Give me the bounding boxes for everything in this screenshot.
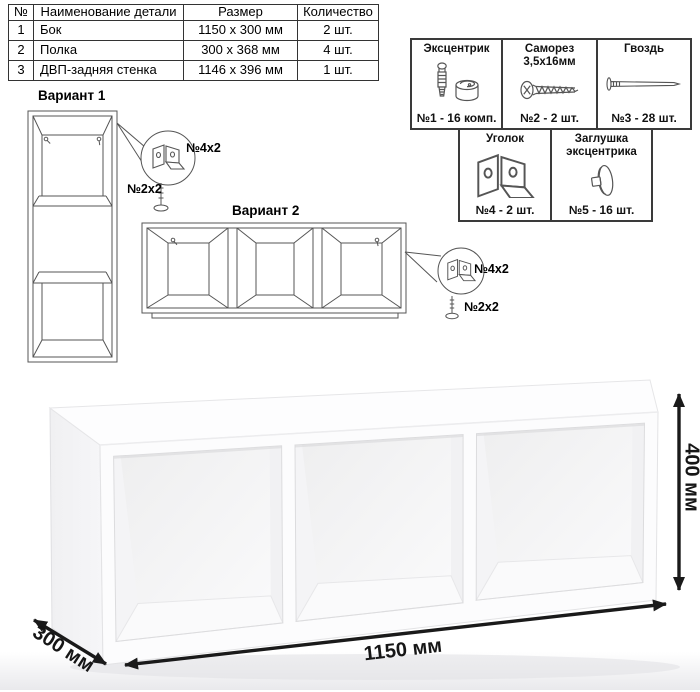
part-num: 2 (9, 41, 34, 61)
col-header-name: Наименование детали (34, 5, 184, 21)
variant1-cabinet-drawing (28, 111, 117, 362)
shelf-3d-render (0, 370, 700, 690)
variants-line-drawing (0, 85, 700, 375)
col-header-qty: Количество (298, 5, 379, 21)
variant2-cabinet-drawing (142, 223, 406, 318)
variant1-bracket-label: №4x2 (186, 141, 221, 155)
table-row: 1 Бок 1150 x 300 мм 2 шт. (9, 21, 379, 41)
part-size: 300 x 368 мм (184, 41, 298, 61)
table-row: 2 Полка 300 x 368 мм 4 шт. (9, 41, 379, 61)
variant2-bracket-label: №4x2 (474, 262, 509, 276)
assembly-instruction-sheet: { "parts_table": { "headers": ["№", "Наи… (0, 0, 700, 690)
variant1-screw-label: №2x2 (127, 182, 162, 196)
col-header-num: № (9, 5, 34, 21)
hardware-title: Саморез (525, 43, 574, 56)
part-qty: 1 шт. (298, 61, 379, 81)
part-name: Бок (34, 21, 184, 41)
shelf-opening (295, 435, 463, 622)
part-qty: 4 шт. (298, 41, 379, 61)
hardware-subtitle: 3,5х16мм (523, 56, 575, 69)
shelf-opening (114, 446, 283, 642)
parts-table-header: № Наименование детали Размер Количество (9, 5, 379, 21)
part-size: 1146 x 396 мм (184, 61, 298, 81)
height-dimension-label: 400 мм (680, 428, 700, 528)
part-num: 1 (9, 21, 34, 41)
part-qty: 2 шт. (298, 21, 379, 41)
variant1-callout (117, 123, 195, 211)
part-num: 3 (9, 61, 34, 81)
parts-table: № Наименование детали Размер Количество … (8, 4, 379, 81)
shelf-opening (476, 423, 644, 600)
part-name: ДВП-задняя стенка (34, 61, 184, 81)
part-size: 1150 x 300 мм (184, 21, 298, 41)
hardware-title: Гвоздь (624, 43, 664, 56)
variant2-screw-label: №2x2 (464, 300, 499, 314)
col-header-size: Размер (184, 5, 298, 21)
table-row: 3 ДВП-задняя стенка 1146 x 396 мм 1 шт. (9, 61, 379, 81)
part-name: Полка (34, 41, 184, 61)
hardware-title: Эксцентрик (423, 43, 489, 56)
